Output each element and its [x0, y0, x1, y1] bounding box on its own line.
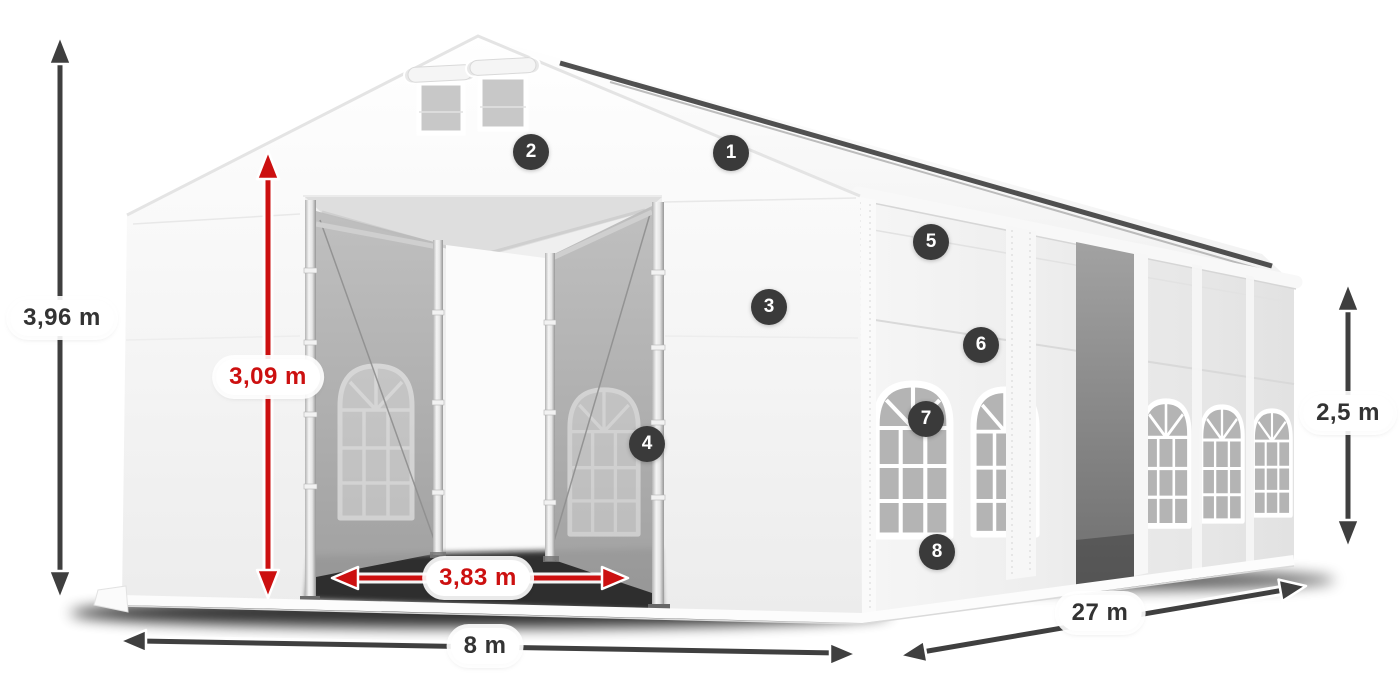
marker-badge-4: 4: [629, 426, 665, 462]
entrance-door-panel-right: [548, 206, 652, 593]
marker-badge-5: 5: [913, 224, 949, 260]
front-entrance: [300, 197, 670, 612]
dimension-label-entrance-width: 3,83 m: [426, 560, 530, 596]
side-window: [1201, 407, 1242, 521]
marker-badge-7: 7: [908, 401, 944, 437]
marker-badge-8: 8: [919, 534, 955, 570]
marker-badge-6: 6: [963, 327, 999, 363]
tent-dimensions-figure: 3,96 m 3,09 m 3,83 m 8 m 27 m 2,5 m 1 2 …: [0, 0, 1400, 700]
side-window: [1143, 401, 1190, 526]
marker-badge-3: 3: [751, 289, 787, 325]
dimension-label-total-height: 3,96 m: [10, 300, 114, 336]
side-entrance-opening: [1076, 242, 1134, 588]
side-window: [1253, 411, 1291, 516]
dimension-label-length: 27 m: [1059, 595, 1142, 631]
dimension-label-entrance-height: 3,09 m: [216, 359, 320, 395]
tent-illustration: [0, 0, 1400, 700]
marker-badge-1: 1: [713, 135, 749, 171]
dimension-label-width: 8 m: [451, 628, 520, 664]
dimension-label-side-height: 2,5 m: [1303, 395, 1393, 431]
entrance-door-panel-left: [316, 211, 438, 577]
marker-badge-2: 2: [513, 134, 549, 170]
